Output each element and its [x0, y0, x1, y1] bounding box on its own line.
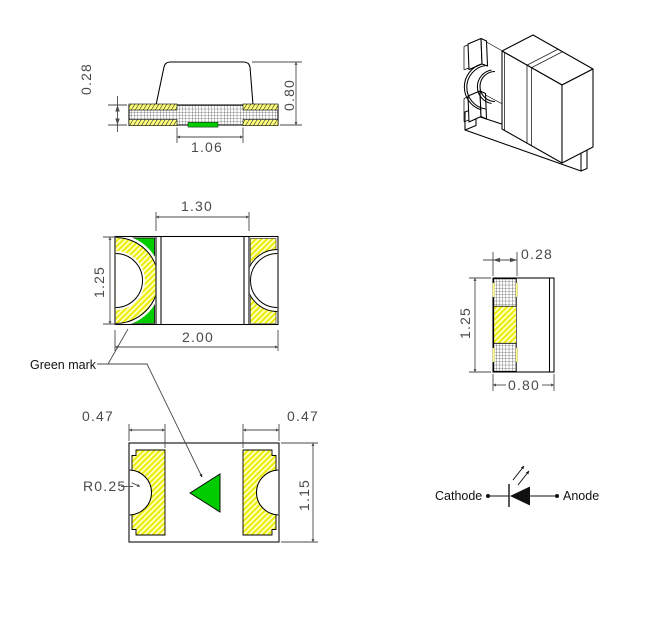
dim-top-view-height: 1.25 [91, 266, 107, 298]
bottom-view: 0.47 0.47 R0.25 1.15 [82, 408, 319, 542]
iso-top-tab-side [481, 39, 488, 67]
green-mark-side [188, 122, 218, 127]
light-emission-arrow-1 [518, 471, 529, 485]
dim-end-view-height: 1.25 [457, 307, 473, 339]
dim-right-pad-width: 0.47 [287, 408, 319, 424]
iso-front-right-face [562, 69, 593, 163]
end-terminal-yellow-mid [494, 306, 517, 343]
terminal-cap-bottom-right [243, 120, 278, 126]
led-package-drawing-page: 0.28 0.80 1.06 [0, 0, 659, 625]
end-terminal-mesh-bottom [494, 343, 517, 371]
anode-terminal-dot [555, 494, 559, 498]
top-view: 1.30 1.25 2.00 [70, 198, 309, 351]
anode-label: Anode [563, 489, 599, 503]
dim-bottom-view-height: 1.15 [296, 479, 312, 511]
light-emission-arrow-2 [513, 466, 524, 480]
dim-terminal-width: 0.28 [521, 246, 553, 262]
led-dimension-drawing: 0.28 0.80 1.06 [0, 0, 659, 625]
polarity-symbol: Cathode Anode [435, 466, 599, 507]
green-mark-text: Green mark [30, 358, 97, 372]
cathode-label: Cathode [435, 489, 482, 503]
cathode-terminal-dot [486, 494, 490, 498]
end-view: 0.28 1.25 0.80 [457, 246, 554, 393]
dim-end-view-width: 0.80 [508, 377, 540, 393]
dim-bottom-terminal-span: 1.06 [191, 139, 223, 155]
iso-view [464, 35, 593, 171]
dim-total-height: 0.80 [281, 79, 297, 111]
terminal-cap-top-left [129, 104, 177, 110]
dim-total-width: 2.00 [182, 329, 214, 345]
diode-triangle-icon [510, 487, 530, 506]
dim-left-pad-width: 0.47 [82, 408, 114, 424]
side-view: 0.28 0.80 1.06 [78, 62, 302, 155]
dim-notch-radius: R0.25 [83, 478, 126, 494]
green-mark-leader-top [108, 329, 128, 364]
end-terminal-mesh-top [494, 279, 517, 307]
dim-body-width: 1.30 [181, 198, 213, 214]
terminal-cap-bottom-left [129, 120, 177, 126]
lens-profile [156, 62, 253, 105]
terminal-cap-top-right [243, 104, 278, 110]
dim-substrate-thickness: 0.28 [78, 63, 94, 95]
